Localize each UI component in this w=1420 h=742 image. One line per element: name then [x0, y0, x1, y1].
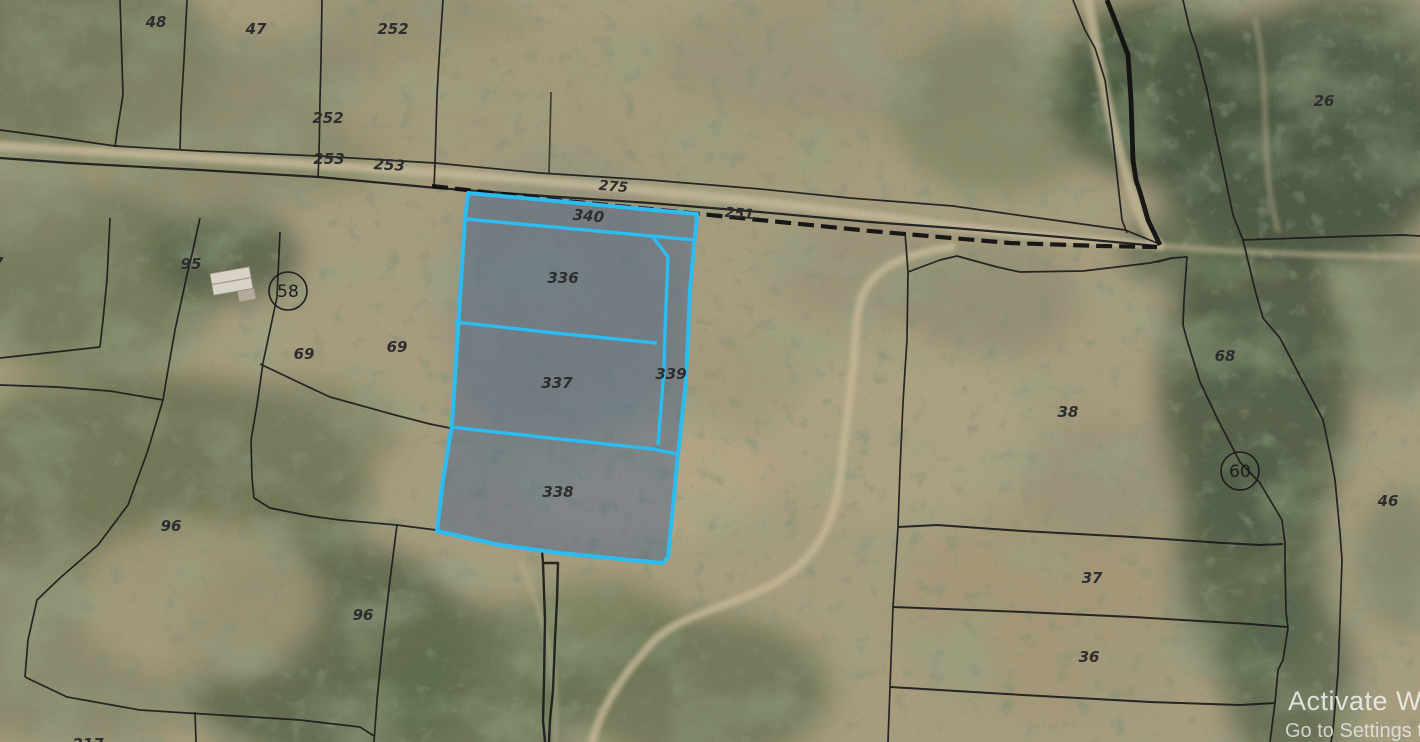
- parcel-label-336: 336: [547, 269, 578, 287]
- parcel-label-48: 48: [145, 13, 167, 31]
- parcel-label-36: 36: [1079, 648, 1100, 666]
- parcel-label-96a: 96: [161, 517, 182, 535]
- parcel-label-275: 275: [598, 178, 629, 197]
- parcel-label-339: 339: [655, 365, 686, 383]
- parcel-label-252b: 252: [312, 109, 343, 127]
- parcel-label-252a: 252: [377, 20, 408, 38]
- grain-light: [0, 0, 1420, 742]
- parcel-label-58: 58: [277, 282, 299, 302]
- parcel-label-253a: 253: [313, 150, 344, 168]
- parcel-label-251: 251: [724, 205, 755, 223]
- parcel-label-68: 68: [1215, 347, 1236, 365]
- parcel-label-338: 338: [542, 483, 573, 501]
- parcel-label-96b: 96: [353, 606, 374, 624]
- parcel-label-60: 60: [1229, 462, 1251, 482]
- parcel-label-253b: 253: [373, 155, 405, 175]
- parcel-label-340: 340: [572, 206, 605, 227]
- parcel-label-47: 47: [245, 20, 267, 38]
- parcel-label-337: 337: [541, 374, 573, 392]
- parcel-label-95: 95: [181, 255, 202, 273]
- map-canvas[interactable]: 48 47 252 252 253 253 275 251 340 336 33…: [0, 0, 1420, 742]
- parcel-label-38: 38: [1058, 403, 1079, 421]
- parcel-label-69b: 69: [387, 338, 408, 356]
- parcel-label-46: 46: [1377, 492, 1399, 510]
- parcel-label-17: 17: [0, 254, 4, 272]
- parcel-label-217: 217: [72, 735, 104, 742]
- parcel-label-26: 26: [1314, 92, 1335, 110]
- map-viewport[interactable]: 48 47 252 252 253 253 275 251 340 336 33…: [0, 0, 1420, 742]
- parcel-label-37: 37: [1082, 569, 1103, 587]
- parcel-label-69a: 69: [294, 345, 315, 363]
